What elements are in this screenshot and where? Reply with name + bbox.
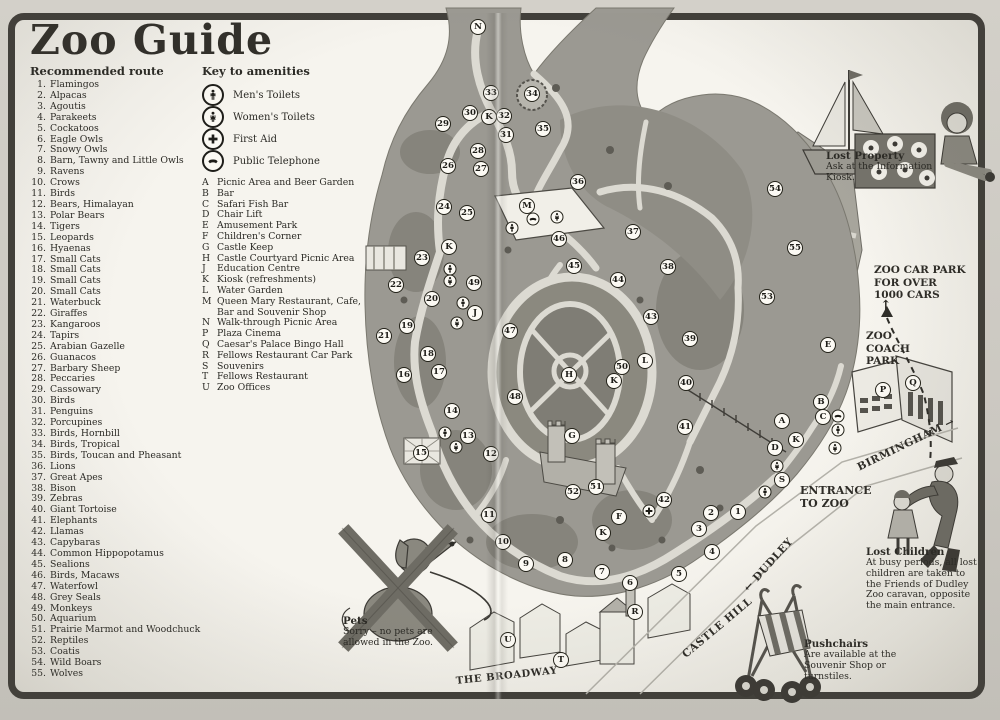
map-marker-16: 16 <box>396 367 412 383</box>
map-marker-Q: Q <box>905 375 921 391</box>
map-marker-K: K <box>441 239 457 255</box>
map-marker-D: D <box>767 440 783 456</box>
map-marker-F: F <box>611 509 627 525</box>
map-marker-23: 23 <box>414 250 430 266</box>
pushchairs-body: Are available at the Souvenir Shop or tu… <box>804 650 908 682</box>
map-marker-J: J <box>467 305 483 321</box>
map-marker-32: 32 <box>496 108 512 124</box>
map-mens-toilet-icon <box>439 427 452 440</box>
map-marker-52: 52 <box>565 484 581 500</box>
map-marker-45: 45 <box>566 258 582 274</box>
map-marker-42: 42 <box>656 492 672 508</box>
map-marker-30: 30 <box>462 105 478 121</box>
entrance-label: ENTRANCE TO ZOO <box>800 484 872 510</box>
map-marker-12: 12 <box>483 446 499 462</box>
map-marker-55: 55 <box>787 240 803 256</box>
map-marker-10: 10 <box>495 534 511 550</box>
lost-property-note: Lost Property Ask at the Information Kio… <box>826 150 944 184</box>
map-marker-R: R <box>627 604 643 620</box>
map-marker-33: 33 <box>483 85 499 101</box>
map-marker-17: 17 <box>431 364 447 380</box>
map-marker-4: 4 <box>704 544 720 560</box>
map-marker-U: U <box>500 632 516 648</box>
car-park-arrow: ↑ <box>880 298 892 314</box>
map-womens-toilet-icon <box>444 275 457 288</box>
map-marker-39: 39 <box>682 331 698 347</box>
map-marker-11: 11 <box>481 507 497 523</box>
map-marker-K: K <box>788 432 804 448</box>
map-marker-1: 1 <box>730 504 746 520</box>
map-marker-18: 18 <box>420 346 436 362</box>
map-marker-8: 8 <box>557 552 573 568</box>
map-mens-toilet-icon <box>759 486 772 499</box>
map-marker-K: K <box>606 373 622 389</box>
map-marker-20: 20 <box>424 291 440 307</box>
map-marker-13: 13 <box>460 428 476 444</box>
map-marker-31: 31 <box>498 127 514 143</box>
map-marker-S: S <box>774 472 790 488</box>
map-marker-7: 7 <box>594 564 610 580</box>
zoo-guide-page: Zoo Guide Recommended route 1.Flamingos2… <box>0 0 1000 720</box>
map-marker-43: 43 <box>643 309 659 325</box>
pets-note: Pets Sorry – no pets are allowed in the … <box>343 615 443 649</box>
map-marker-54: 54 <box>767 181 783 197</box>
lost-property-body: Ask at the Information Kiosk. <box>826 162 944 184</box>
map-womens-toilet-icon <box>829 442 842 455</box>
map-marker-H: H <box>561 367 577 383</box>
map-marker-A: A <box>774 413 790 429</box>
map-marker-24: 24 <box>436 199 452 215</box>
map-marker-28: 28 <box>470 143 486 159</box>
map-marker-53: 53 <box>759 289 775 305</box>
map-marker-N: N <box>470 19 486 35</box>
map-marker-34: 34 <box>524 86 540 102</box>
map-marker-49: 49 <box>466 275 482 291</box>
map-mens-toilet-icon <box>506 222 519 235</box>
map-marker-41: 41 <box>677 419 693 435</box>
map-marker-C: C <box>815 409 831 425</box>
map-marker-44: 44 <box>610 272 626 288</box>
map-marker-2: 2 <box>703 505 719 521</box>
map-telephone-icon <box>832 410 845 423</box>
map-marker-L: L <box>637 353 653 369</box>
lost-children-body: At busy periods, all lost children are t… <box>866 558 978 612</box>
pets-body: Sorry – no pets are allowed in the Zoo. <box>343 627 443 649</box>
car-park-label: ZOO CAR PARK FOR OVER 1000 CARS <box>874 264 966 302</box>
map-marker-40: 40 <box>678 375 694 391</box>
map-marker-15: 15 <box>413 445 429 461</box>
map-womens-toilet-icon <box>450 441 463 454</box>
map-womens-toilet-icon <box>551 211 564 224</box>
map-marker-P: P <box>875 382 891 398</box>
map-marker-38: 38 <box>660 259 676 275</box>
map-marker-26: 26 <box>440 158 456 174</box>
map-marker-5: 5 <box>671 566 687 582</box>
map-marker-G: G <box>564 428 580 444</box>
map-marker-14: 14 <box>444 403 460 419</box>
map-marker-22: 22 <box>388 277 404 293</box>
map-telephone-icon <box>527 213 540 226</box>
map-marker-3: 3 <box>691 521 707 537</box>
map-marker-25: 25 <box>459 205 475 221</box>
map-mens-toilet-icon <box>457 297 470 310</box>
map-marker-9: 9 <box>518 556 534 572</box>
map-marker-K: K <box>595 525 611 541</box>
map-marker-21: 21 <box>376 328 392 344</box>
map-marker-35: 35 <box>535 121 551 137</box>
pushchairs-note: Pushchairs Are available at the Souvenir… <box>804 638 908 682</box>
map-marker-51: 51 <box>588 479 604 495</box>
map-first-aid-icon <box>643 505 656 518</box>
map-marker-47: 47 <box>502 323 518 339</box>
map-marker-46: 46 <box>551 231 567 247</box>
map-marker-19: 19 <box>399 318 415 334</box>
map-marker-27: 27 <box>473 161 489 177</box>
coach-park-label: ZOO COACH PARK <box>866 330 910 368</box>
map-womens-toilet-icon <box>451 317 464 330</box>
map-marker-48: 48 <box>507 389 523 405</box>
lost-children-note: Lost Children At busy periods, all lost … <box>866 546 978 612</box>
map-marker-29: 29 <box>435 116 451 132</box>
map-marker-K: K <box>481 109 497 125</box>
map-marker-B: B <box>813 394 829 410</box>
map-marker-37: 37 <box>625 224 641 240</box>
map-womens-toilet-icon <box>771 460 784 473</box>
map-marker-E: E <box>820 337 836 353</box>
map-marker-6: 6 <box>622 575 638 591</box>
map-marker-36: 36 <box>570 174 586 190</box>
map-mens-toilet-icon <box>832 424 845 437</box>
